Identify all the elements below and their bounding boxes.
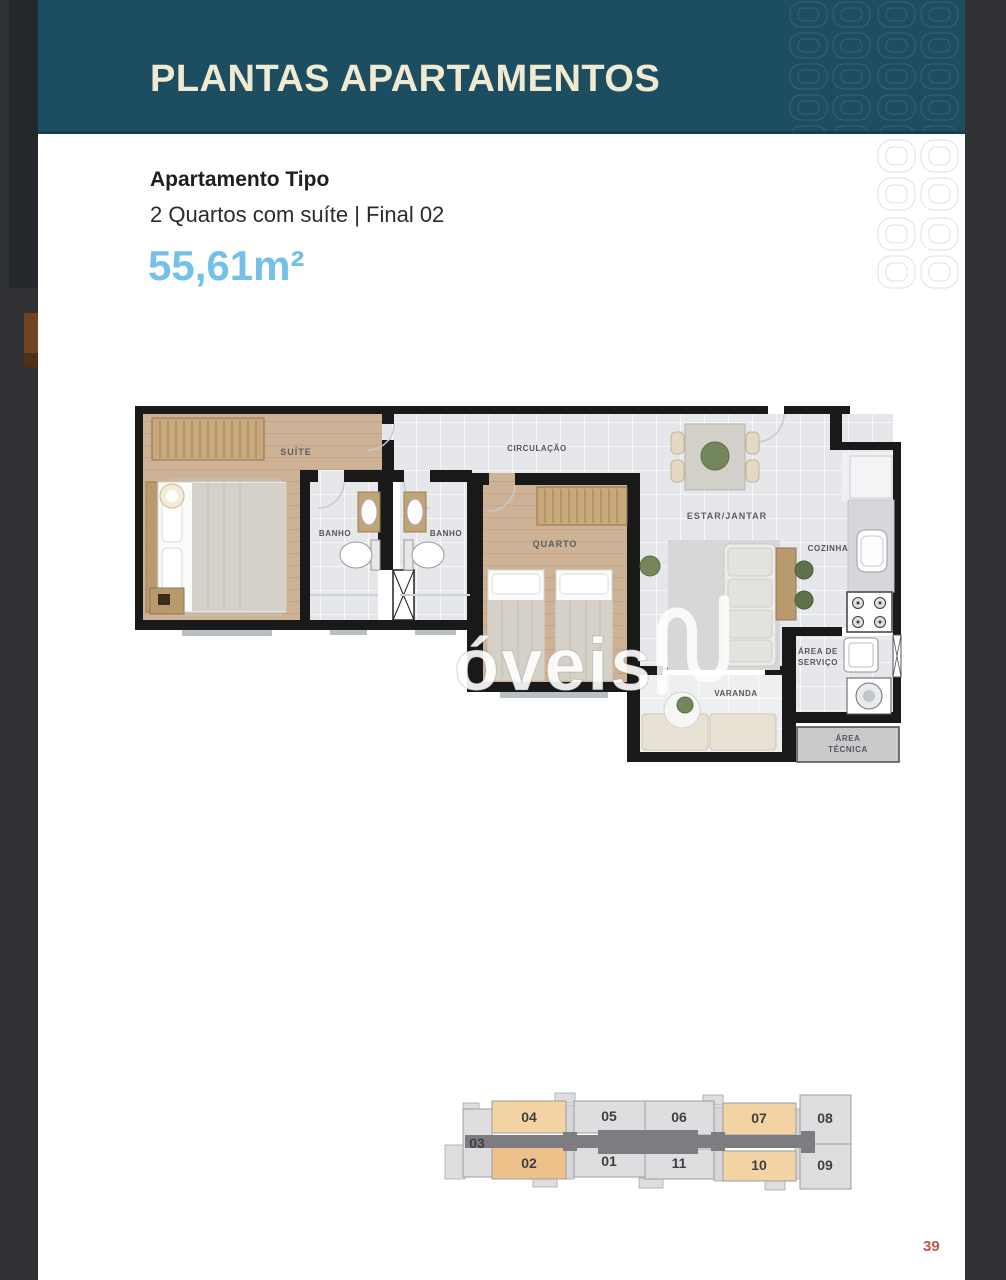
- toilet: [404, 540, 444, 570]
- sofa: [724, 544, 776, 666]
- washer: [847, 678, 891, 714]
- room-label-tecnica-2: TÉCNICA: [828, 745, 868, 754]
- keyplan-unit-label: 09: [817, 1157, 833, 1173]
- cozinha-fixtures: [847, 456, 894, 632]
- room-label-banho1: BANHO: [319, 529, 351, 538]
- room-label-tecnica-1: ÁREA: [835, 734, 860, 743]
- sink-basin: [407, 499, 423, 525]
- room-label-quarto: QUARTO: [533, 539, 578, 549]
- plant: [677, 697, 693, 713]
- shower-partition: [310, 594, 378, 596]
- sink-basin: [361, 499, 377, 525]
- fridge: [850, 456, 892, 498]
- nightstand: [150, 588, 184, 614]
- keyplan-unit-label: 04: [521, 1109, 537, 1125]
- room-label-cozinha: COZINHA: [808, 544, 849, 553]
- bedside-lamp-light: [166, 490, 178, 502]
- bench: [710, 714, 776, 750]
- right-filmstrip: [965, 0, 1006, 1280]
- stool: [795, 591, 813, 609]
- room-label-varanda: VARANDA: [714, 689, 758, 698]
- flower-pattern-on-white: [878, 140, 958, 288]
- keyplan-unit-label: 02: [521, 1155, 537, 1171]
- plant: [640, 556, 660, 576]
- watermark-text: óveis: [454, 623, 653, 706]
- page-title: PLANTAS APARTAMENTOS: [150, 58, 660, 101]
- sideboard: [776, 548, 796, 620]
- brochure-page: PLANTAS APARTAMENTOS: [38, 0, 965, 1280]
- room-label-circulacao: CIRCULAÇÃO: [507, 444, 567, 453]
- room-label-suite: SUÍTE: [280, 447, 312, 457]
- apartment-description: 2 Quartos com suíte | Final 02: [150, 202, 630, 228]
- left-filmstrip: [0, 0, 38, 1280]
- stove: [847, 592, 892, 632]
- room-label-servico-1: ÁREA DE: [798, 647, 838, 656]
- keyplan-unit-label: 10: [751, 1157, 767, 1173]
- keyplan: 03 04 05 06 07 08 02 01 11 10 09: [443, 1085, 863, 1210]
- apartment-info: Apartamento Tipo 2 Quartos com suíte | F…: [150, 168, 630, 290]
- left-filmstrip-shade: [9, 0, 38, 288]
- shower-partition: [400, 594, 470, 596]
- keyplan-unit-label: 11: [672, 1155, 687, 1171]
- watermark-dot: [369, 729, 387, 747]
- thumbnail: [24, 313, 38, 367]
- page-number: 39: [923, 1238, 940, 1255]
- room-label-estar: ESTAR/JANTAR: [687, 511, 767, 521]
- apartment-area: 55,61m²: [148, 242, 630, 290]
- page-header: PLANTAS APARTAMENTOS: [38, 0, 965, 134]
- stool: [795, 561, 813, 579]
- toilet: [340, 540, 380, 570]
- keyplan-unit-label: 06: [671, 1109, 687, 1125]
- keyplan-unit-label: 05: [601, 1108, 617, 1124]
- room-label-banho2: BANHO: [430, 529, 462, 538]
- keyplan-unit-label: 03: [469, 1135, 485, 1151]
- keyplan-unit-label: 08: [817, 1110, 833, 1126]
- kitchen-sink: [857, 530, 887, 572]
- room-label-servico-2: SERVIÇO: [798, 658, 838, 667]
- service-window: [893, 635, 901, 677]
- laundry-tank: [844, 638, 878, 672]
- floorplan: SUÍTE BANHO BANHO CIRCULAÇÃO QUARTO ESTA…: [128, 398, 908, 778]
- wardrobe: [537, 487, 627, 525]
- keyplan-unit-label: 07: [751, 1110, 767, 1126]
- apartment-type-label: Apartamento Tipo: [150, 168, 630, 192]
- wardrobe: [152, 418, 264, 460]
- keyplan-unit-label: 01: [601, 1153, 617, 1169]
- table-plant: [701, 442, 729, 470]
